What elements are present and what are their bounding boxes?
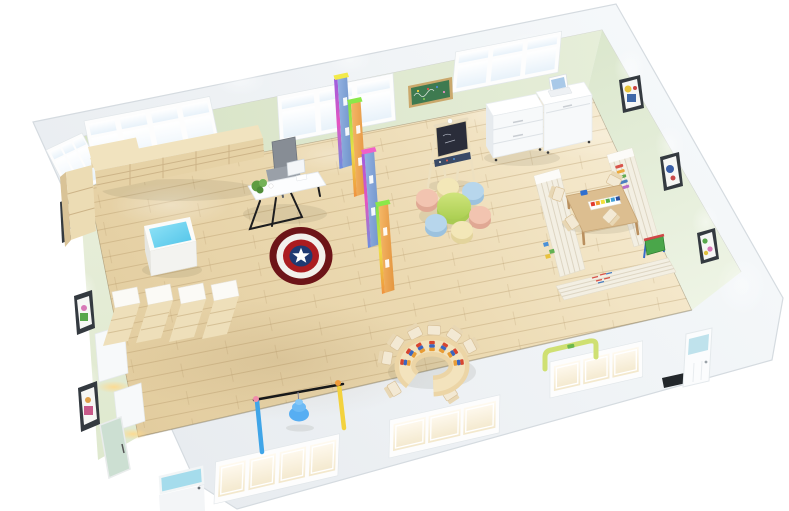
flower-stool (416, 189, 438, 212)
right-wall-picture-1 (619, 75, 644, 113)
door-handle (198, 487, 201, 490)
flower-stool (425, 214, 447, 237)
wall-spotlight (328, 46, 372, 74)
flower-stool (469, 206, 491, 229)
right-wall-picture-2 (660, 152, 683, 191)
front-door-left (159, 467, 205, 511)
flower-stool (451, 221, 473, 244)
captain-america-rug (270, 227, 333, 285)
floorplan-stage (0, 0, 789, 511)
wall-spotlight (716, 256, 768, 316)
wall-spotlight (214, 64, 266, 96)
left-wall-picture-3 (78, 381, 100, 432)
door-handle (705, 361, 708, 364)
desk-cup (269, 184, 273, 188)
floorplan-render (0, 0, 789, 511)
flower-table-top (437, 193, 471, 220)
left-wall-picture-2 (74, 290, 95, 335)
